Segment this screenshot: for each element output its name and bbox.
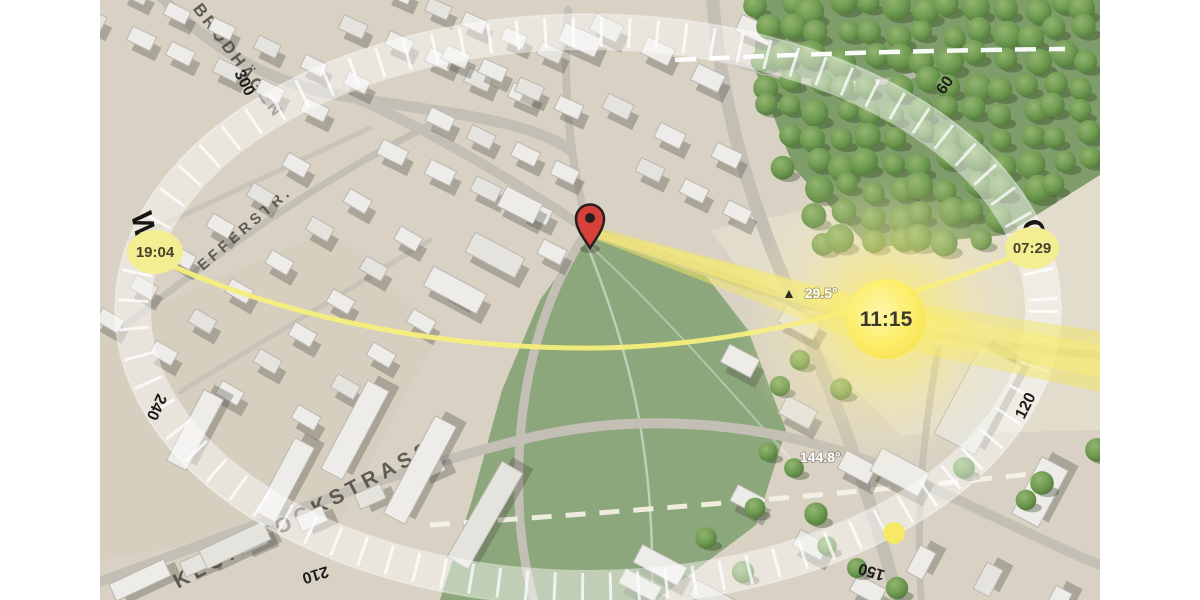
sun-azimuth-label: 144.8° bbox=[800, 449, 841, 465]
sunrise-time-bubble[interactable]: 07:29 bbox=[1005, 227, 1059, 269]
map-3d-view[interactable]: AM BRODHÄGEN EFFERSTR. KLOPSTOCKSTRASSE … bbox=[100, 0, 1100, 600]
white-margin-right bbox=[1100, 0, 1200, 600]
sun-elevation-label: ▲ 29.5° bbox=[782, 285, 838, 301]
sunset-time-bubble[interactable]: 19:04 bbox=[127, 230, 183, 274]
sunrise-time: 07:29 bbox=[1013, 240, 1051, 257]
white-margin-left bbox=[0, 0, 100, 600]
current-time: 11:15 bbox=[860, 308, 913, 331]
sun-elevation-icon: ▲ bbox=[782, 285, 796, 301]
map-scene: AM BRODHÄGEN EFFERSTR. KLOPSTOCKSTRASSE … bbox=[100, 0, 1100, 600]
sunset-time: 19:04 bbox=[136, 244, 175, 261]
winter-sun-dot bbox=[883, 522, 905, 544]
sun-marker[interactable]: 11:15 bbox=[846, 279, 926, 359]
sun-map-app: AM BRODHÄGEN EFFERSTR. KLOPSTOCKSTRASSE … bbox=[0, 0, 1200, 600]
